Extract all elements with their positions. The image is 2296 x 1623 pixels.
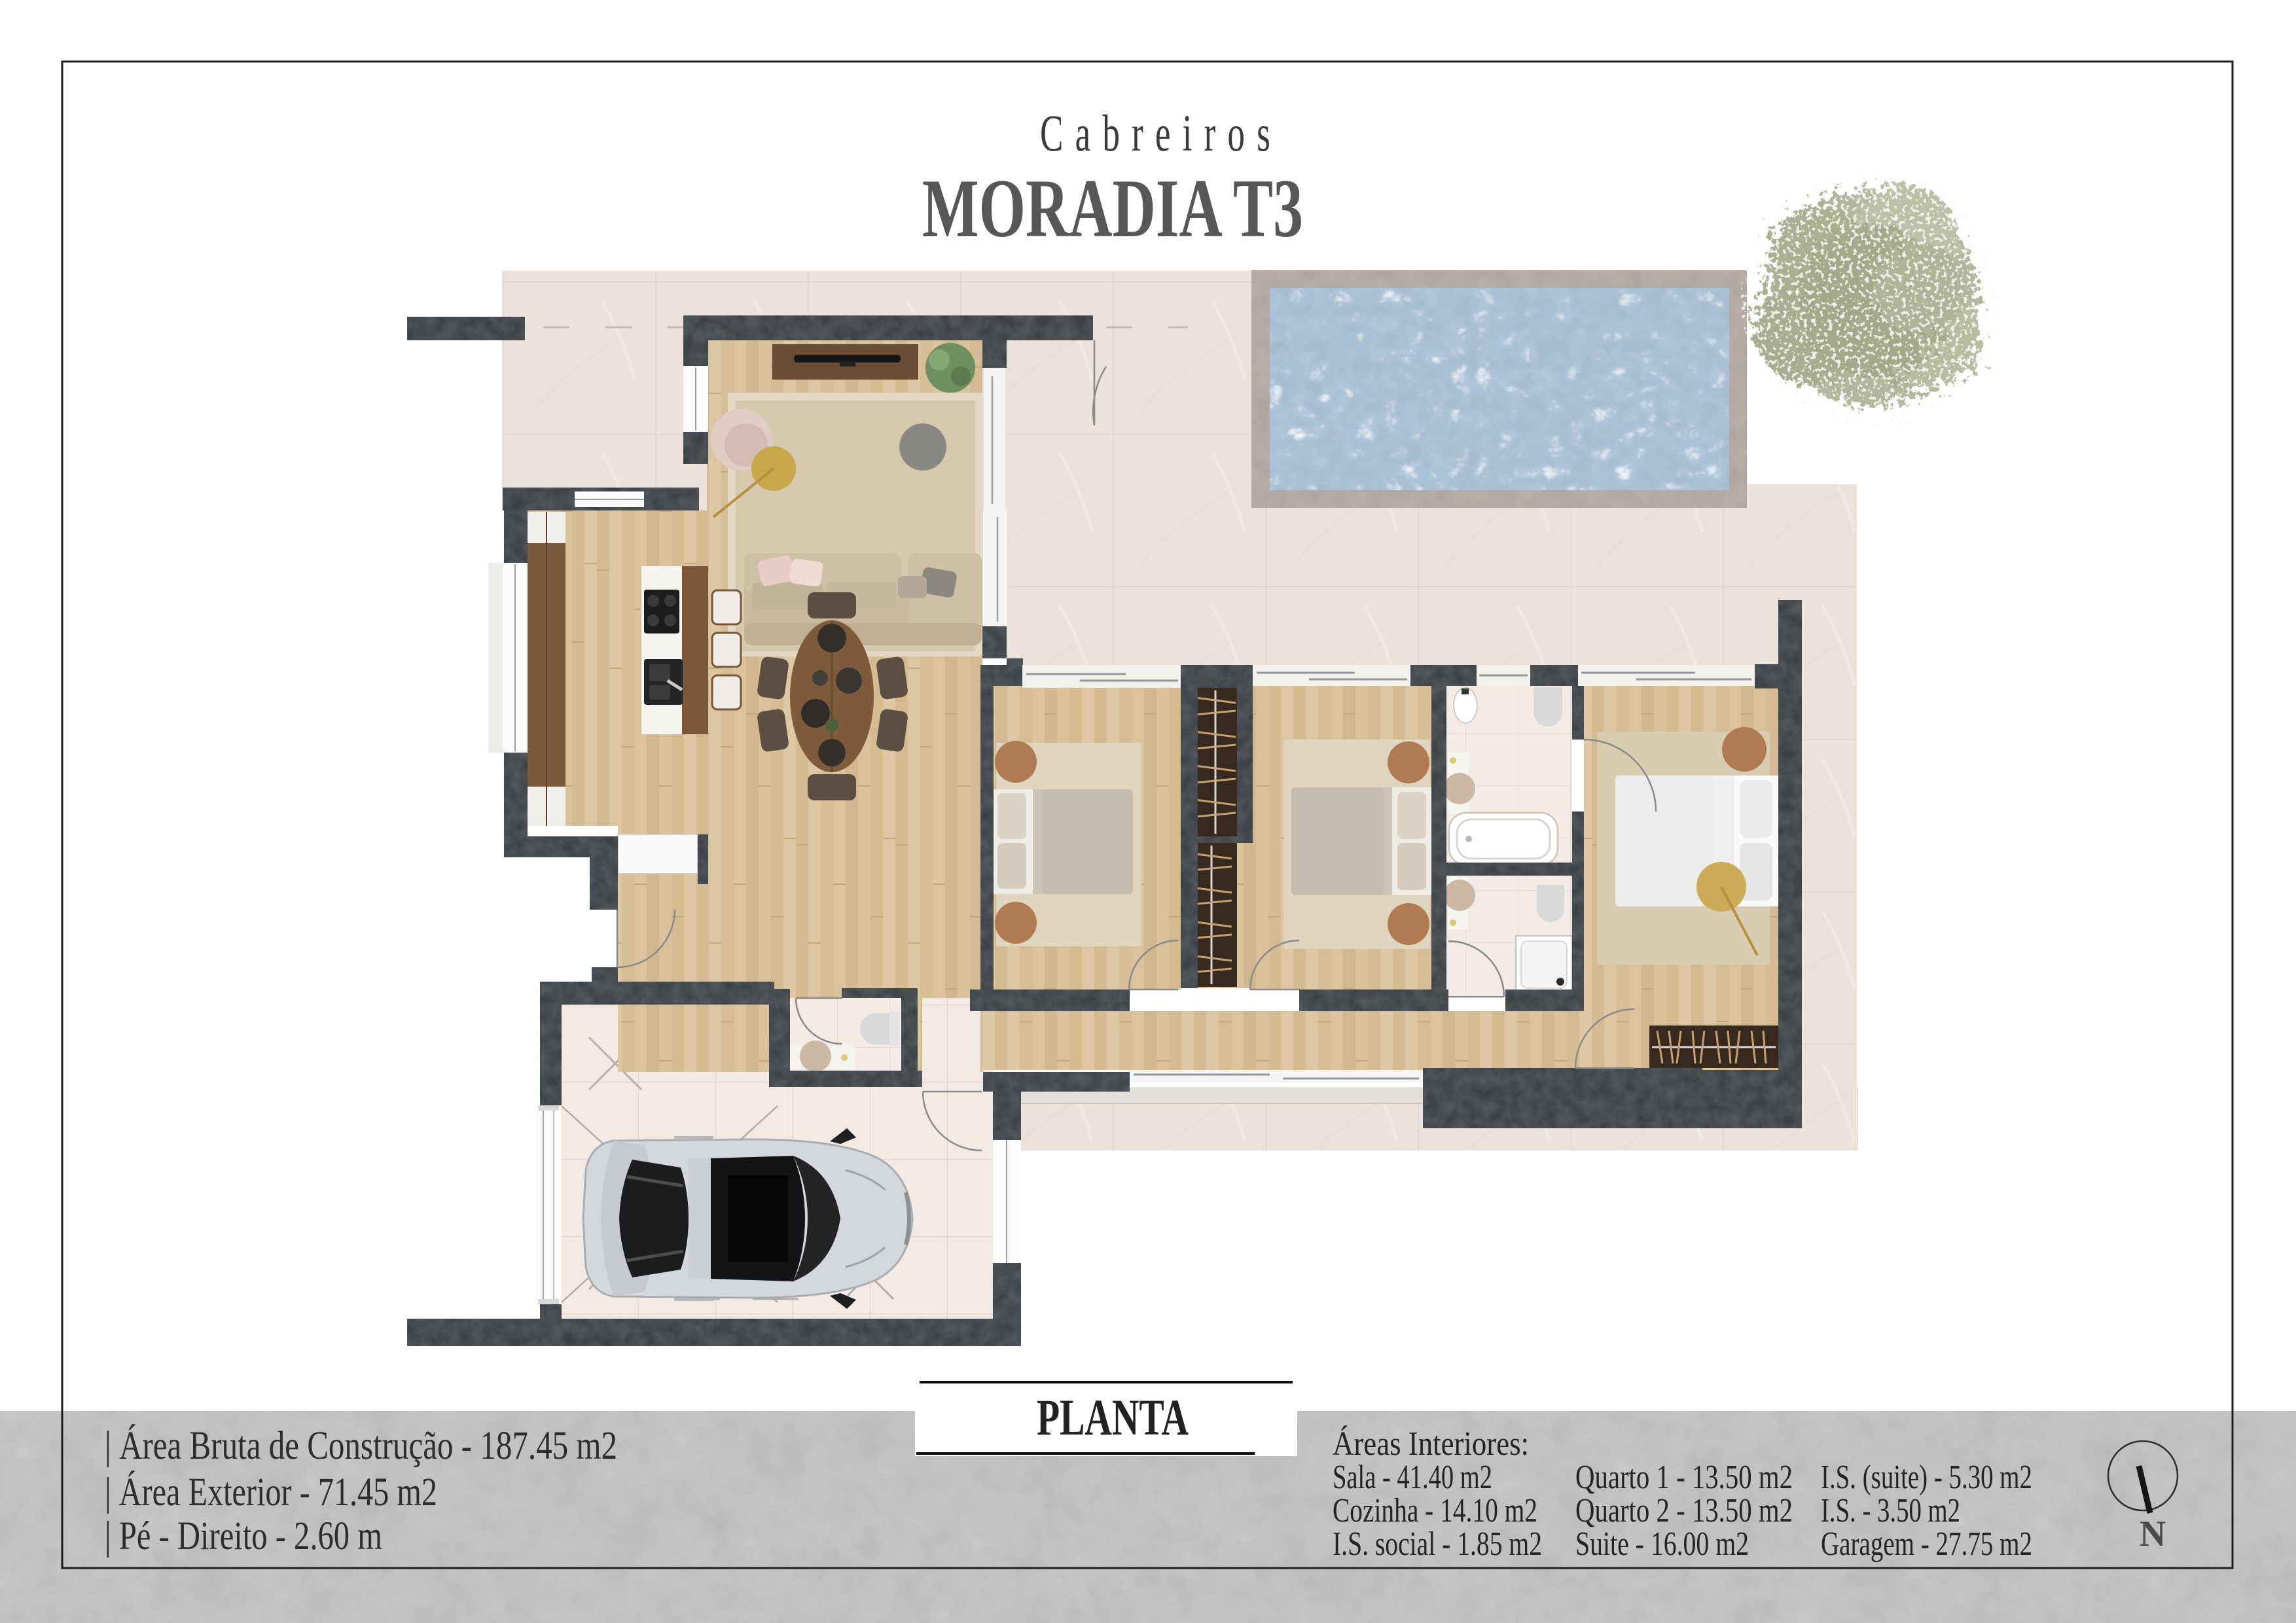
svg-text:N: N (2140, 1514, 2166, 1554)
svg-text:I.S. - 3.50 m2: I.S. - 3.50 m2 (1821, 1492, 1960, 1529)
svg-text:Sala - 41.40 m2: Sala - 41.40 m2 (1333, 1459, 1492, 1496)
svg-text:I.S. social - 1.85 m2: I.S. social - 1.85 m2 (1333, 1525, 1542, 1563)
svg-text:Suite - 16.00 m2: Suite - 16.00 m2 (1575, 1525, 1749, 1563)
svg-text:Garagem - 27.75 m2: Garagem - 27.75 m2 (1821, 1525, 2032, 1563)
svg-text:Quarto 1 - 13.50 m2: Quarto 1 - 13.50 m2 (1575, 1459, 1793, 1496)
svg-text:| Área Bruta de Construção - 1: | Área Bruta de Construção - 187.45 m2 (105, 1424, 617, 1468)
svg-text:I.S. (suite) - 5.30 m2: I.S. (suite) - 5.30 m2 (1821, 1459, 2032, 1496)
svg-text:| Pé - Direito - 2.60 m: | Pé - Direito - 2.60 m (105, 1514, 382, 1558)
svg-text:PLANTA: PLANTA (1037, 1389, 1189, 1446)
svg-text:Áreas Interiores:: Áreas Interiores: (1333, 1425, 1529, 1463)
svg-text:MORADIA T3: MORADIA T3 (922, 163, 1303, 255)
svg-text:Quarto 2 - 13.50 m2: Quarto 2 - 13.50 m2 (1575, 1492, 1793, 1529)
svg-text:Cozinha - 14.10 m2: Cozinha - 14.10 m2 (1333, 1492, 1537, 1529)
svg-text:| Área Exterior - 71.45 m2: | Área Exterior - 71.45 m2 (105, 1471, 437, 1514)
svg-text:Cabreiros: Cabreiros (1040, 105, 1282, 162)
